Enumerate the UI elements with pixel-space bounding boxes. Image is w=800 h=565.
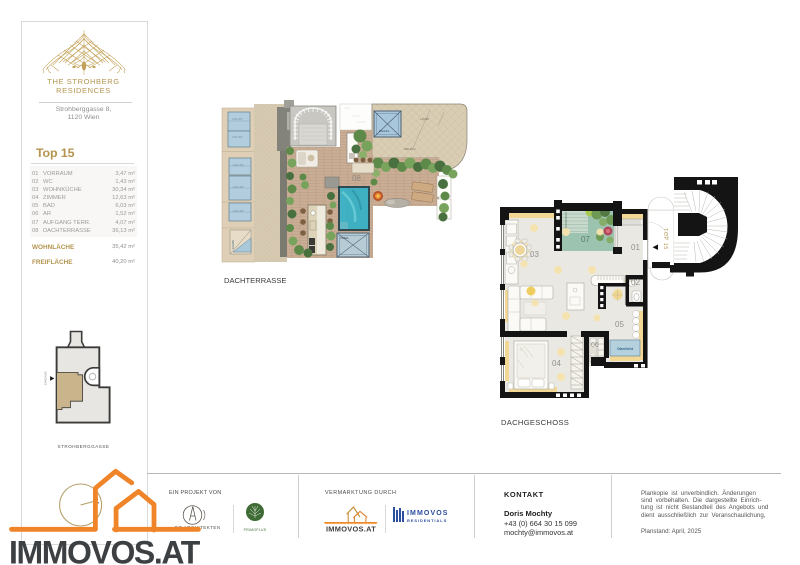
svg-text:IMMOVOS.AT: IMMOVOS.AT xyxy=(9,535,201,565)
svg-text:IMMOVOS: IMMOVOS xyxy=(407,510,449,517)
svg-text:EINGANG: EINGANG xyxy=(44,370,48,385)
svg-text:05: 05 xyxy=(615,320,624,329)
svg-text:04: 04 xyxy=(552,359,561,368)
svg-text:RESIDENTIALS: RESIDENTIALS xyxy=(407,518,447,523)
svg-text:Oberlicht: Oberlicht xyxy=(617,347,634,351)
svg-text:08: 08 xyxy=(352,174,361,183)
svg-text:03: 03 xyxy=(530,250,539,259)
svg-text:TOP 15: TOP 15 xyxy=(662,228,668,250)
svg-text:IMMOVOS.AT: IMMOVOS.AT xyxy=(326,525,376,534)
svg-text:174 m PV: 174 m PV xyxy=(232,118,243,121)
svg-text:01: 01 xyxy=(631,243,640,252)
svg-text:174 m PV: 174 m PV xyxy=(233,186,244,189)
svg-text:DACHFL.: DACHFL. xyxy=(379,129,390,133)
svg-text:158,43 m: 158,43 m xyxy=(404,147,416,151)
svg-text:174 m PV: 174 m PV xyxy=(233,164,244,167)
svg-text:06: 06 xyxy=(591,342,599,349)
svg-text:07: 07 xyxy=(581,235,590,244)
svg-text:RAMPE: RAMPE xyxy=(231,240,235,249)
svg-text:OBERL.: OBERL. xyxy=(340,236,350,240)
svg-text:174 m PV: 174 m PV xyxy=(232,136,243,139)
svg-text:174 m PV: 174 m PV xyxy=(233,210,244,213)
svg-text:02: 02 xyxy=(631,278,640,287)
svg-text:+15,98: +15,98 xyxy=(420,117,429,121)
